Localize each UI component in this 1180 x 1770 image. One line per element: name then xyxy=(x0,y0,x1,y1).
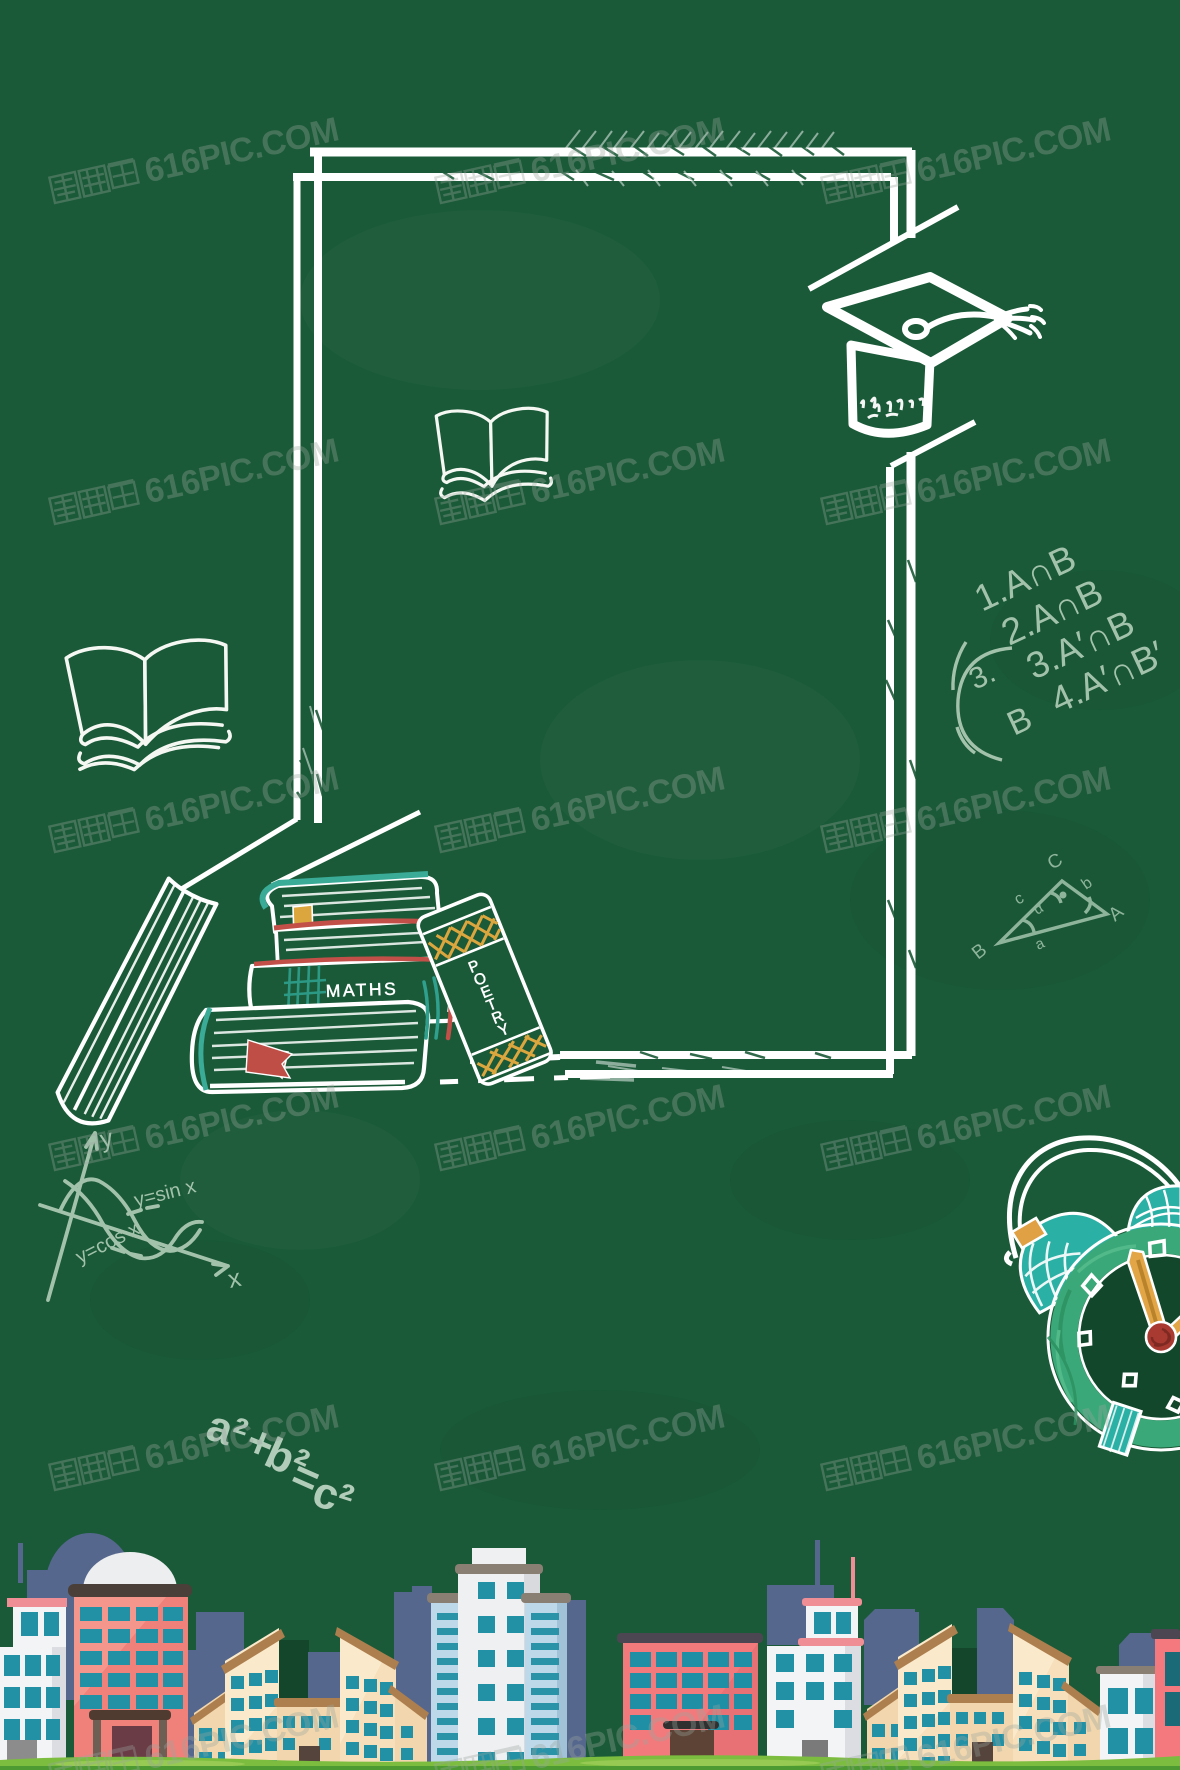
svg-text:MATHS: MATHS xyxy=(325,978,398,1001)
